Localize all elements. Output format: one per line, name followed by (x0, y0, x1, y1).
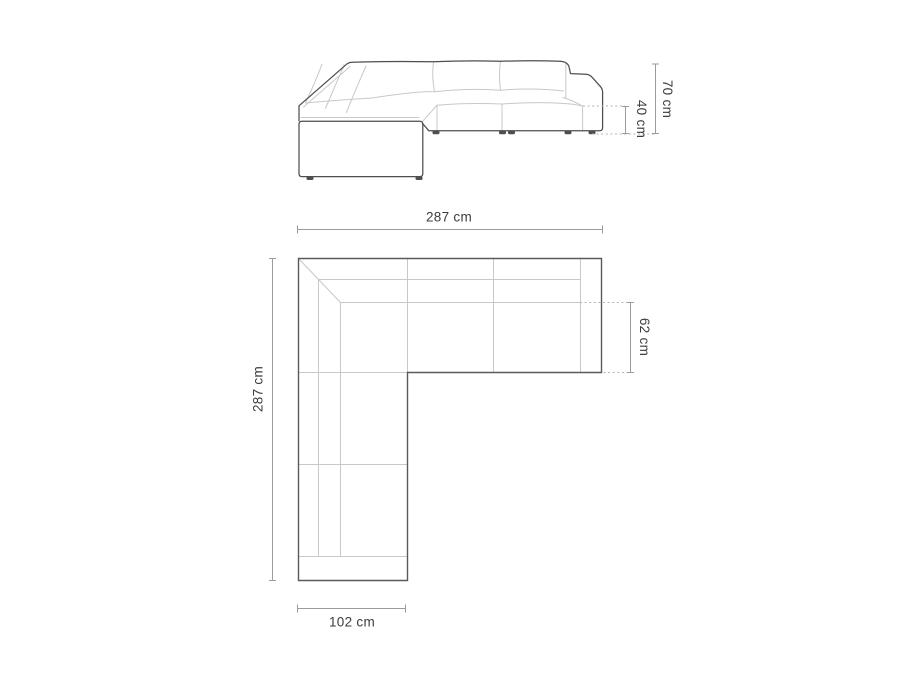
sofa-technical-drawing (0, 0, 900, 675)
top-plan-outline (299, 259, 602, 581)
front-elevation-outline (299, 61, 603, 177)
dimension-label-total-width: 287 cm (426, 210, 472, 224)
dimension-label-seat-depth: 62 cm (637, 318, 651, 356)
front-elevation-feet (307, 131, 596, 180)
dimension-label-total-height: 70 cm (660, 80, 674, 118)
sofa-dimension-diagram: 70 cm 40 cm 287 cm 287 cm 62 cm 102 cm (0, 0, 900, 675)
dimension-label-chaise-width: 102 cm (329, 615, 375, 629)
dimension-label-total-depth: 287 cm (251, 366, 265, 412)
dimension-label-seat-height: 40 cm (634, 100, 648, 138)
dimension-lines (269, 64, 659, 613)
front-elevation-detail-lines (301, 61, 583, 131)
top-plan-detail-lines (299, 259, 581, 557)
